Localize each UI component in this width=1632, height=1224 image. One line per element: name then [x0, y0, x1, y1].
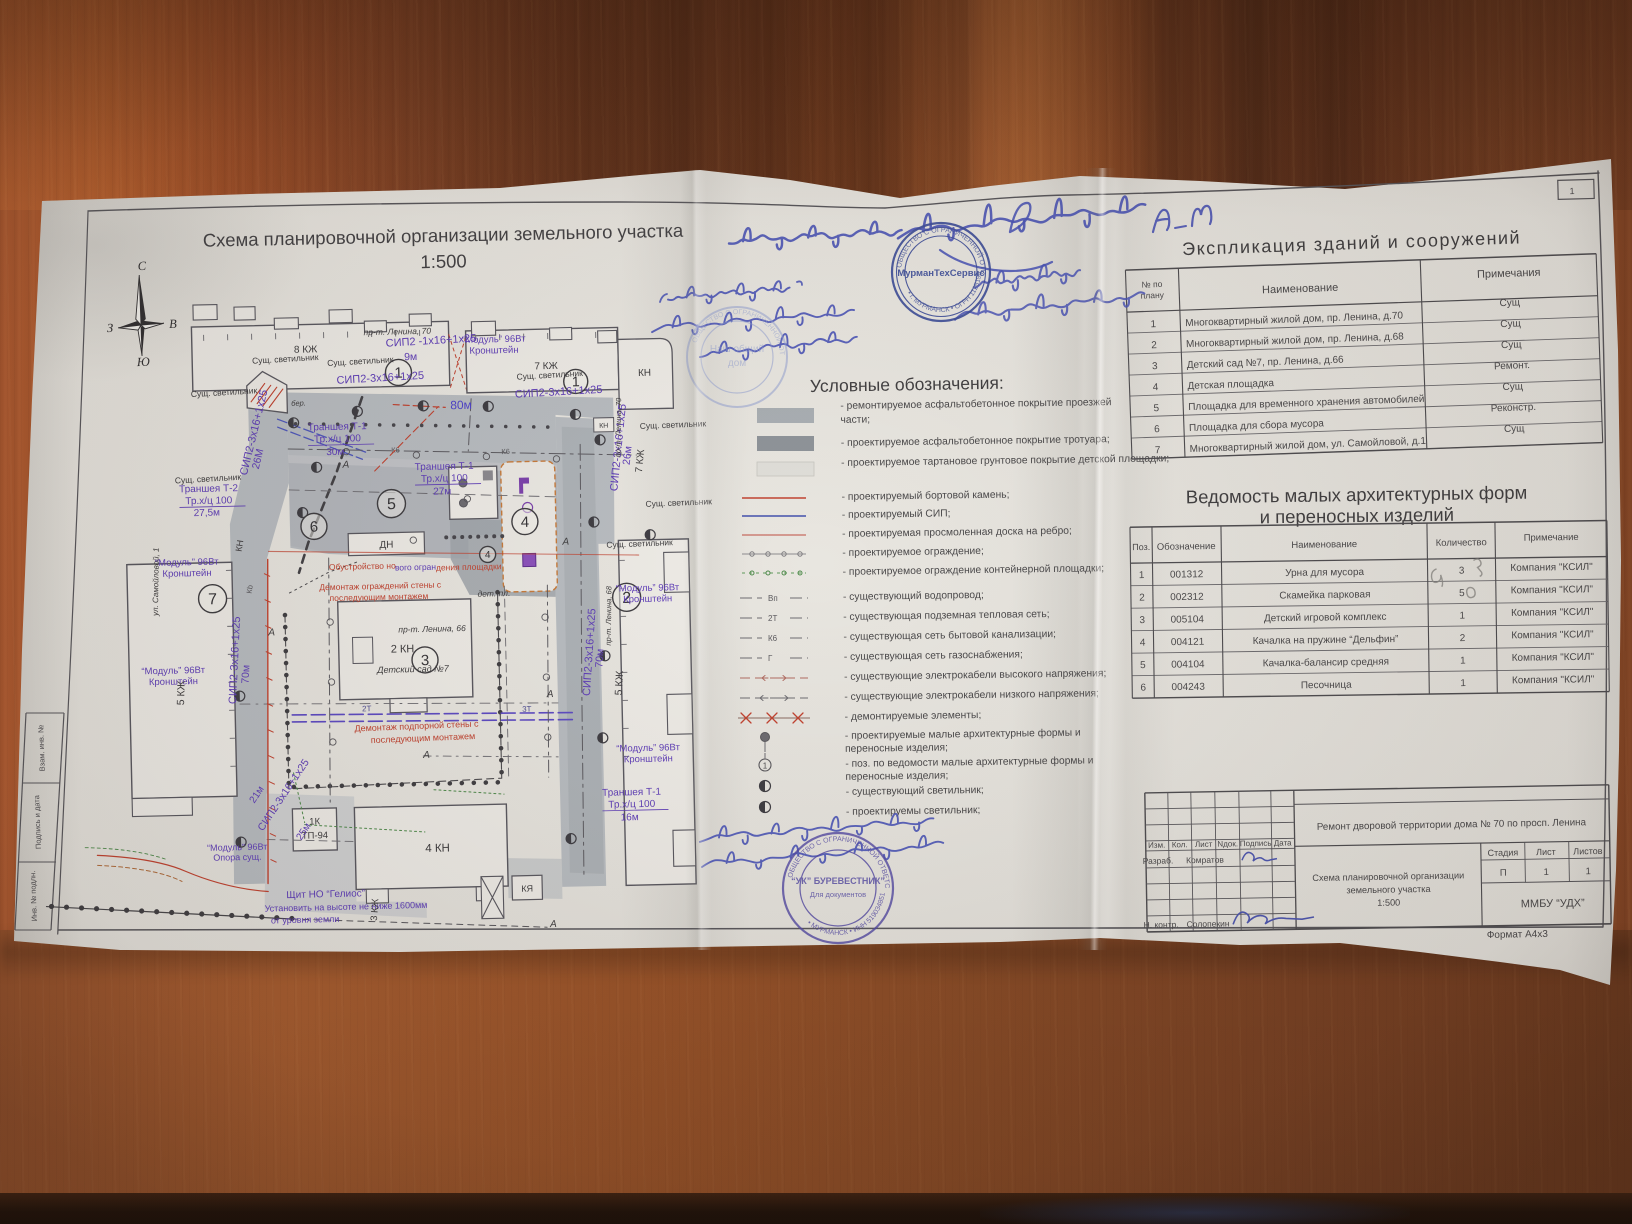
svg-text:Кронштейн: Кронштейн — [162, 568, 211, 580]
svg-text:3 КЖ: 3 КЖ — [369, 898, 381, 921]
svg-text:Кb: Кb — [245, 584, 255, 594]
svg-text:9м: 9м — [404, 351, 417, 363]
svg-text:4: 4 — [521, 514, 530, 531]
svg-text:Траншея Т-1: Траншея Т-1 — [602, 787, 662, 799]
svg-text:МурманТехСервис: МурманТехСервис — [897, 268, 984, 279]
svg-text:Сущ: Сущ — [1499, 297, 1520, 309]
svg-text:пр-т. Ленина, 68: пр-т. Ленина, 68 — [604, 585, 614, 645]
svg-text:Лист: Лист — [1195, 840, 1213, 849]
svg-text:1: 1 — [1459, 611, 1465, 622]
svg-text:1: 1 — [1585, 866, 1590, 877]
svg-text:Для документов: Для документов — [810, 890, 866, 899]
svg-text:Компания "КСИЛ": Компания "КСИЛ" — [1512, 652, 1595, 664]
svg-text:Сущ: Сущ — [1500, 318, 1521, 330]
svg-text:004121: 004121 — [1171, 637, 1205, 648]
svg-text:- проектируемая просмоленная д: - проектируемая просмоленная доска на ре… — [842, 525, 1072, 540]
svg-text:Вп: Вп — [768, 594, 778, 603]
svg-text:3Т: 3Т — [522, 704, 532, 713]
svg-text:5 КЖ: 5 КЖ — [175, 680, 188, 705]
svg-text:Качалка-балансир средняя: Качалка-балансир средняя — [1263, 656, 1389, 670]
svg-text:2Т: 2Т — [362, 704, 372, 713]
svg-text:последующим монтажем: последующим монтажем — [371, 731, 476, 745]
svg-text:2: 2 — [1460, 633, 1466, 644]
svg-text:Наш общий: Наш общий — [710, 343, 764, 355]
svg-text:Многоквартирный жилой дом, ул.: Многоквартирный жилой дом, ул. Самойлово… — [1190, 436, 1427, 455]
svg-text:1: 1 — [1139, 570, 1145, 581]
svg-text:005104: 005104 — [1170, 614, 1204, 625]
svg-text:- существующие электрокабели н: - существующие электрокабели низкого нап… — [844, 687, 1099, 703]
svg-text:Экспликация зданий и сооруж: Экспликация зданий и сооружений — [1182, 227, 1522, 259]
svg-text:Кронштейн: Кронштейн — [469, 345, 518, 357]
svg-text:6: 6 — [310, 519, 319, 536]
svg-text:Наименование: Наименование — [1262, 282, 1339, 297]
svg-text:001312: 001312 — [1170, 569, 1204, 580]
svg-text:КН: КН — [638, 368, 651, 379]
svg-text:1: 1 — [1460, 656, 1466, 667]
svg-text:7: 7 — [1155, 445, 1161, 456]
svg-text:Тр.х/ц 100: Тр.х/ц 100 — [421, 473, 469, 485]
svg-text:Кронштейн: Кронштейн — [624, 753, 673, 765]
svg-text:30м: 30м — [326, 447, 344, 458]
svg-text:5: 5 — [387, 496, 396, 513]
svg-text:ОБЩЕСТВО С ОГРАНИЧЕННОЙ ОТВЕТС: ОБЩЕСТВО С ОГРАНИЧЕННОЙ ОТВЕТСТВЕННОСТЬЮ — [0, 0, 785, 356]
svg-text:Обустройство но: Обустройство но — [329, 561, 396, 573]
svg-text:Компания "КСИЛ": Компания "КСИЛ" — [1512, 674, 1595, 686]
svg-text:земельного участка: земельного участка — [1346, 884, 1431, 895]
svg-text:Траншея Т-1: Траншея Т-1 — [415, 461, 475, 473]
svg-text:- ремонтируемое асфальтобетонн: - ремонтируемое асфальтобетонное покрыти… — [840, 396, 1112, 412]
svg-text:дет. пл.: дет. пл. — [477, 588, 510, 599]
svg-text:В: В — [169, 317, 177, 331]
svg-text:26м: 26м — [621, 445, 635, 465]
svg-text:Урна для мусора: Урна для мусора — [1285, 567, 1364, 579]
svg-text:- демонтируемые элементы;: - демонтируемые элементы; — [845, 710, 982, 723]
svg-text:Компания "КСИЛ": Компания "КСИЛ" — [1511, 584, 1594, 596]
svg-text:Поз.: Поз. — [1132, 542, 1150, 552]
svg-text:70м: 70м — [593, 648, 606, 668]
svg-text:от уровня земли: от уровня земли — [271, 914, 340, 926]
svg-text:Стадия: Стадия — [1487, 847, 1518, 858]
svg-text:2: 2 — [1139, 592, 1145, 603]
svg-text:Комратов: Комратов — [1186, 855, 1224, 866]
svg-text:- существующая подземная тепло: - существующая подземная тепловая сеть; — [843, 609, 1050, 623]
svg-text:П: П — [1500, 868, 1507, 879]
svg-text:Н. контр.: Н. контр. — [1143, 919, 1178, 930]
svg-text:Лист: Лист — [1536, 847, 1556, 857]
svg-text:ДН: ДН — [379, 540, 393, 551]
svg-text:- проектируемое асфальтобетонн: - проектируемое асфальтобетонное покрыти… — [841, 433, 1110, 449]
svg-text:Nдок.: Nдок. — [1217, 839, 1238, 848]
svg-text:дения площадки: дения площадки — [436, 561, 502, 572]
svg-text:- проектируемый бортовой камен: - проектируемый бортовой камень; — [841, 489, 1009, 503]
svg-text:- существующие электрокабели в: - существующие электрокабели высокого на… — [844, 667, 1106, 683]
svg-text:1: 1 — [1150, 319, 1156, 330]
svg-text:Кронштейн: Кронштейн — [149, 676, 198, 688]
svg-text:7: 7 — [208, 591, 217, 608]
svg-text:5 КЖ: 5 КЖ — [613, 670, 626, 695]
svg-text:Песочница: Песочница — [1301, 680, 1352, 692]
svg-text:пр-т. Ленина, 70: пр-т. Ленина, 70 — [613, 397, 623, 457]
svg-text:6: 6 — [1140, 682, 1146, 693]
svg-text:- существующий светильник;: - существующий светильник; — [846, 785, 984, 798]
svg-text:А: А — [341, 460, 349, 471]
svg-text:Качалка на пружине “Дельфин”: Качалка на пружине “Дельфин” — [1253, 633, 1399, 647]
svg-text:002312: 002312 — [1170, 592, 1204, 603]
svg-text:Подпись: Подпись — [1240, 839, 1272, 849]
svg-text:Опора сущ.: Опора сущ. — [213, 852, 262, 863]
svg-text:Примечание: Примечание — [1524, 532, 1579, 544]
svg-text:Взам. инв. №: Взам. инв. № — [36, 725, 47, 772]
svg-text:Тр.х/ц 100: Тр.х/ц 100 — [185, 495, 233, 507]
svg-text:4: 4 — [1153, 382, 1159, 393]
svg-text:Изм.: Изм. — [1148, 841, 1165, 850]
svg-text:80м: 80м — [450, 398, 472, 412]
svg-text:Примечания: Примечания — [1477, 267, 1541, 281]
svg-text:Сущ: Сущ — [1502, 381, 1523, 393]
svg-text:27,5м: 27,5м — [194, 508, 221, 520]
svg-text:Солопекин: Солопекин — [1187, 918, 1230, 929]
svg-text:- проектируемый СИП;: - проектируемый СИП; — [842, 508, 951, 521]
svg-text:• г. МУРМАНСК • ОГРН 112519005: • г. МУРМАНСК • ОГРН 1125190054 — [0, 0, 983, 314]
svg-text:К6: К6 — [501, 447, 510, 456]
svg-text:А: А — [561, 537, 569, 548]
svg-text:Тр.х/ц 100: Тр.х/ц 100 — [608, 799, 656, 811]
svg-text:Детский игровой комплекс: Детский игровой комплекс — [1264, 612, 1387, 625]
svg-text:6: 6 — [1154, 424, 1160, 435]
svg-text:2Т: 2Т — [768, 614, 777, 623]
svg-text:Многоквартирный жилой дом, пр.: Многоквартирный жилой дом, пр. Ленина, д… — [1185, 310, 1403, 329]
svg-text:4 КН: 4 КН — [425, 842, 450, 855]
svg-text:5: 5 — [1459, 588, 1465, 599]
svg-text:1:500: 1:500 — [420, 250, 467, 272]
svg-text:27м: 27м — [433, 486, 451, 497]
svg-text:Ю: Ю — [136, 355, 150, 369]
svg-text:Детская площадка: Детская площадка — [1187, 378, 1274, 392]
svg-text:плану: плану — [1141, 290, 1165, 301]
svg-text:Подпись и дата: Подпись и дата — [32, 794, 43, 849]
svg-text:вого огран: вого огран — [395, 562, 437, 573]
svg-text:З: З — [107, 321, 114, 335]
svg-text:Сущ: Сущ — [1504, 423, 1525, 435]
svg-text:Сущ: Сущ — [1501, 339, 1522, 351]
svg-text:К6: К6 — [768, 634, 778, 643]
svg-text:Ремонт.: Ремонт. — [1494, 360, 1530, 372]
svg-text:- проектируемое тартановое гру: - проектируемое тартановое грунтовое пок… — [841, 453, 1169, 469]
svg-text:3: 3 — [1459, 566, 1465, 577]
svg-text:2: 2 — [1151, 340, 1157, 351]
svg-text:переносные изделия;: переносные изделия; — [845, 770, 948, 782]
svg-text:Г: Г — [768, 654, 773, 663]
svg-text:Компания "КСИЛ": Компания "КСИЛ" — [1511, 607, 1594, 619]
svg-text:ММБУ “УДХ”: ММБУ “УДХ” — [1521, 897, 1585, 910]
svg-text:части;: части; — [840, 415, 870, 426]
svg-text:КН: КН — [234, 539, 246, 552]
svg-text:Наименование: Наименование — [1291, 539, 1357, 551]
svg-text:1: 1 — [763, 762, 768, 771]
svg-text:Условные обозначения:: Условные обозначения: — [810, 373, 1004, 396]
svg-text:С: С — [138, 259, 147, 273]
svg-text:Детский сад №7: Детский сад №7 — [376, 663, 450, 675]
svg-text:Количество: Количество — [1436, 537, 1487, 549]
svg-text:2 КН: 2 КН — [391, 643, 415, 656]
svg-text:КЯ: КЯ — [521, 884, 533, 894]
svg-text:Листов: Листов — [1573, 846, 1603, 857]
svg-text:7 КЖ: 7 КЖ — [634, 448, 647, 473]
svg-text:004243: 004243 — [1171, 682, 1205, 693]
svg-text:Щит НО “Гелиос”: Щит НО “Гелиос” — [286, 888, 365, 901]
svg-text:Площадка для временного хранен: Площадка для временного хранения автомоб… — [1188, 393, 1425, 413]
svg-text:КН: КН — [599, 423, 608, 430]
svg-text:А: А — [549, 919, 557, 930]
svg-text:70м: 70м — [240, 665, 253, 684]
svg-text:пр-т. Ленина, 66: пр-т. Ленина, 66 — [398, 623, 466, 635]
svg-text:“УК” БУРЕВЕСТНИК”: “УК” БУРЕВЕСТНИК” — [791, 876, 885, 886]
svg-text:Формат А4х3: Формат А4х3 — [1487, 929, 1549, 941]
svg-text:- проектируемое ограждение;: - проектируемое ограждение; — [842, 546, 984, 559]
svg-text:Инв. № подлн.: Инв. № подлн. — [28, 871, 39, 922]
svg-text:- проектируемы светильник;: - проектируемы светильник; — [846, 805, 981, 818]
svg-text:Ремонт дворовой территории дом: Ремонт дворовой территории дома № 70 по … — [1317, 817, 1587, 833]
svg-text:дом: дом — [728, 358, 746, 369]
svg-text:- поз. по ведомости малые архи: - поз. по ведомости малые архитектурные … — [845, 754, 1094, 769]
svg-text:Компания "КСИЛ": Компания "КСИЛ" — [1510, 562, 1593, 574]
svg-text:004104: 004104 — [1171, 659, 1205, 670]
svg-text:Траншея Т-1: Траншея Т-1 — [308, 421, 368, 433]
svg-text:- существующая сеть бытовой к: - существующая сеть бытовой канализации; — [843, 628, 1056, 643]
svg-text:1: 1 — [1543, 867, 1548, 878]
svg-text:Реконстр.: Реконстр. — [1491, 402, 1537, 415]
svg-text:Траншея Т-2: Траншея Т-2 — [179, 483, 239, 495]
svg-text:Многоквартирный жилой дом, пр.: Многоквартирный жилой дом, пр. Ленина, д… — [1186, 331, 1404, 350]
svg-text:Обозначение: Обозначение — [1157, 541, 1216, 553]
svg-text:3: 3 — [1139, 615, 1145, 626]
svg-text:переносные изделия;: переносные изделия; — [845, 742, 948, 754]
svg-text:1:500: 1:500 — [1377, 897, 1400, 907]
svg-text:А: А — [267, 627, 275, 638]
svg-text:А: А — [546, 689, 554, 700]
svg-text:Кронштейн: Кронштейн — [623, 593, 672, 605]
svg-text:1: 1 — [1460, 678, 1466, 689]
svg-text:Компания "КСИЛ": Компания "КСИЛ" — [1511, 629, 1594, 641]
svg-text:Площадка для сбора мусора: Площадка для сбора мусора — [1189, 417, 1325, 434]
svg-text:А: А — [422, 750, 430, 761]
svg-text:№ по: № по — [1141, 279, 1162, 290]
svg-text:5: 5 — [1153, 403, 1159, 414]
svg-text:Ведомость малых архитектурных: Ведомость малых архитектурных форм — [1186, 482, 1528, 508]
svg-text:16м: 16м — [621, 812, 639, 823]
svg-text:Скамейка парковая: Скамейка парковая — [1279, 589, 1370, 601]
svg-text:- существующий водопровод;: - существующий водопровод; — [843, 590, 984, 603]
svg-text:3: 3 — [1152, 361, 1158, 372]
svg-text:- проектируемое ограждение кон: - проектируемое ограждение контейнерной … — [843, 563, 1105, 578]
svg-text:- проектируемые малые архитект: - проектируемые малые архитектурные форм… — [845, 727, 1081, 742]
svg-text:Тр.х/ц 100: Тр.х/ц 100 — [314, 433, 362, 445]
svg-text:Разраб.: Разраб. — [1143, 855, 1174, 866]
svg-text:Схема планировочной организаци: Схема планировочной организации земельно… — [203, 220, 685, 251]
svg-text:4: 4 — [485, 550, 491, 561]
svg-text:4: 4 — [1140, 637, 1146, 648]
svg-text:- существующая сеть газоснабж: - существующая сеть газоснабжения; — [844, 648, 1023, 662]
svg-text:Кол.: Кол. — [1172, 840, 1188, 849]
svg-text:Дата: Дата — [1274, 838, 1292, 847]
svg-text:5: 5 — [1140, 660, 1146, 671]
svg-text:Схема планировочной организаци: Схема планировочной организации — [1312, 870, 1464, 883]
svg-text:1: 1 — [1569, 186, 1574, 196]
svg-text:бер.: бер. — [291, 399, 306, 408]
